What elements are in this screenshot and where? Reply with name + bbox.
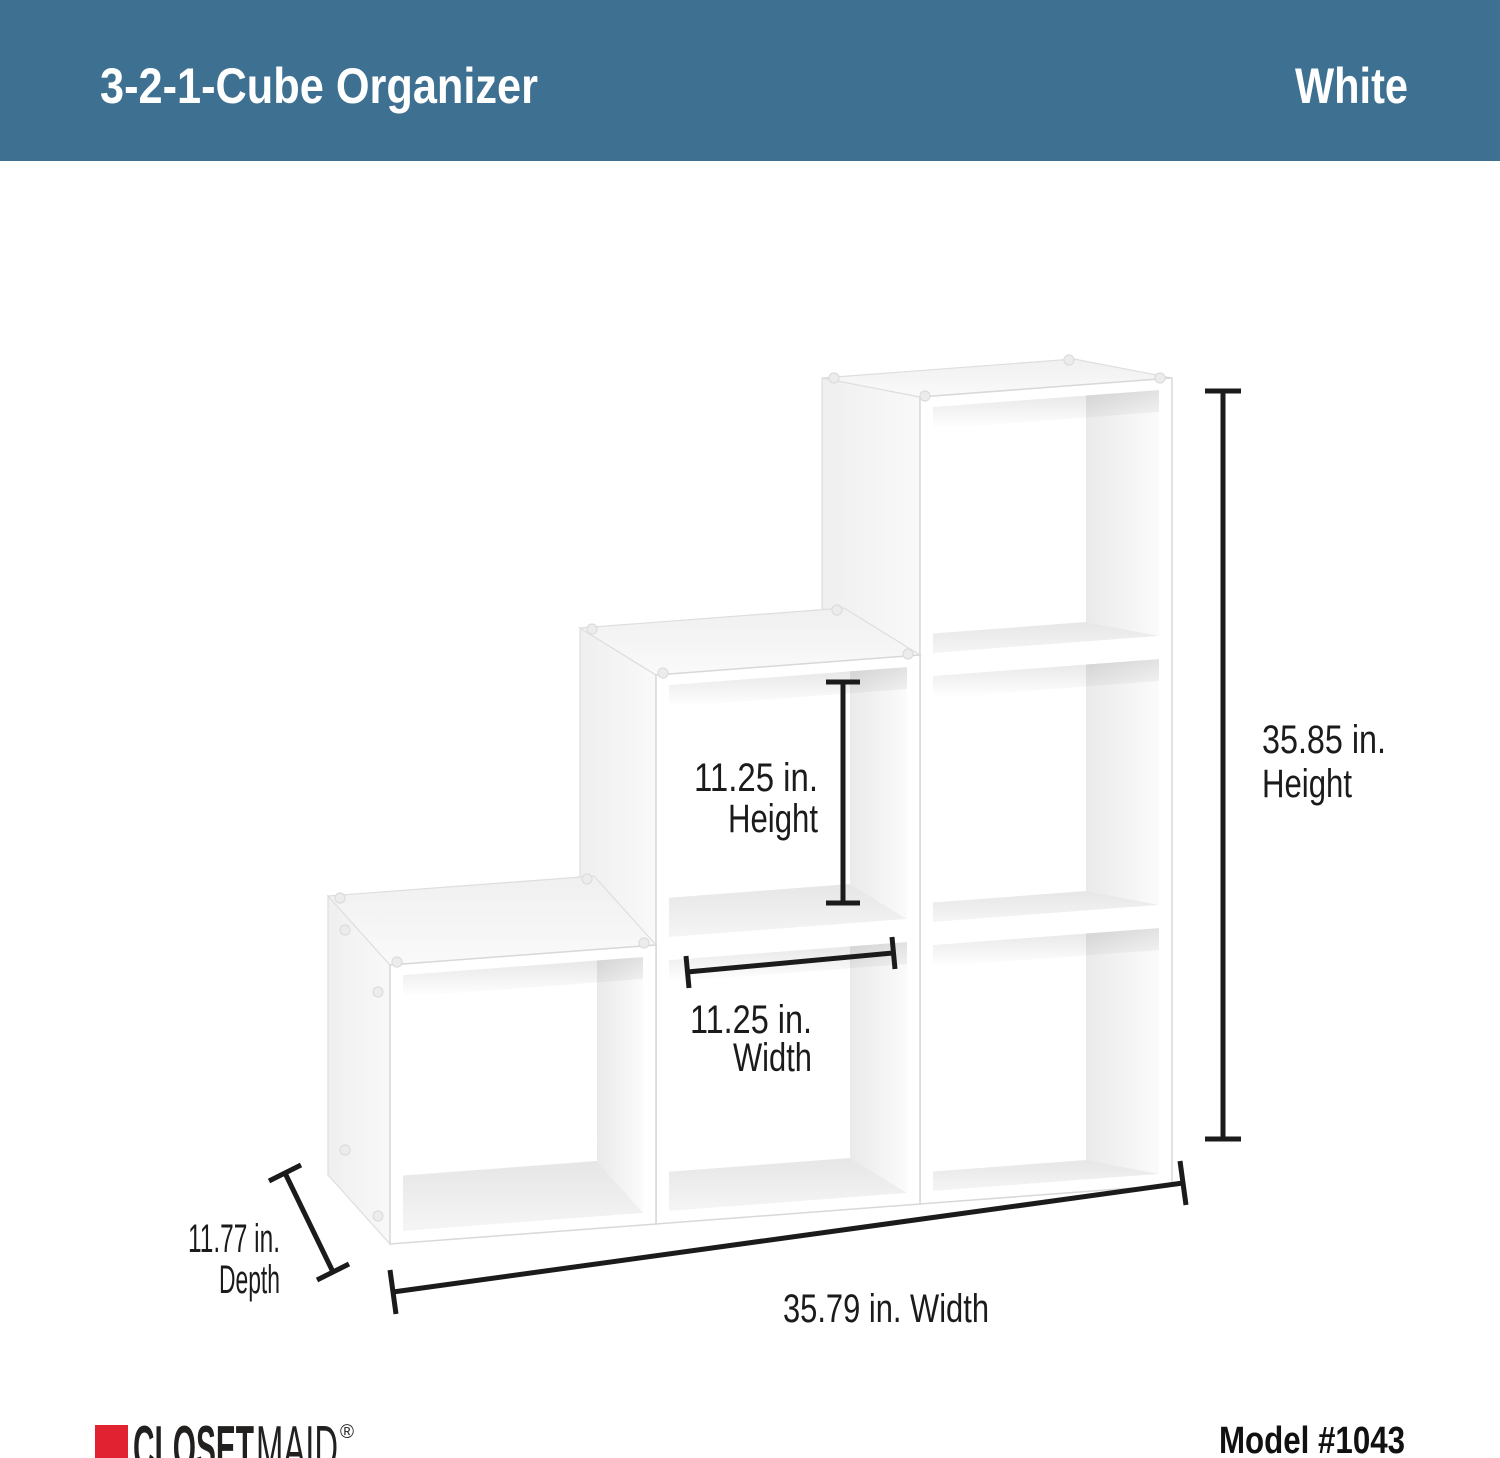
- inner-width-label: Width: [733, 1036, 812, 1080]
- overall-height-value: 35.85 in.: [1262, 718, 1386, 762]
- overall-width-value: 35.79 in. Width: [783, 1287, 989, 1331]
- model-number: Model #1043: [1219, 1420, 1405, 1458]
- color-label: White: [1295, 58, 1408, 114]
- left-column: [328, 876, 656, 1244]
- depth-label: Depth: [219, 1258, 280, 1302]
- page-title: 3-2-1-Cube Organizer: [100, 58, 538, 114]
- inner-height-label: Height: [728, 797, 818, 841]
- diagram-svg: 3-2-1-Cube Organizer White: [0, 0, 1500, 1458]
- brand-name-primary: CLOSET: [133, 1414, 254, 1458]
- inner-height-value: 11.25 in.: [694, 756, 818, 800]
- depth-dimension: 11.77 in. Depth: [188, 1165, 349, 1302]
- header-bar: 3-2-1-Cube Organizer White: [0, 0, 1500, 161]
- footer: CLOSET MAID ® Model #1043: [95, 1414, 1405, 1458]
- overall-height-label: Height: [1262, 762, 1352, 806]
- brand-name-secondary: MAID: [256, 1414, 338, 1458]
- logo-red-square: [95, 1425, 128, 1458]
- depth-value: 11.77 in.: [188, 1217, 280, 1261]
- registered-trademark-symbol: ®: [340, 1422, 354, 1443]
- overall-height-dimension: 35.85 in. Height: [1205, 391, 1386, 1139]
- product-dimension-diagram: 3-2-1-Cube Organizer White: [0, 0, 1500, 1458]
- closetmaid-logo: CLOSET MAID ®: [95, 1414, 354, 1458]
